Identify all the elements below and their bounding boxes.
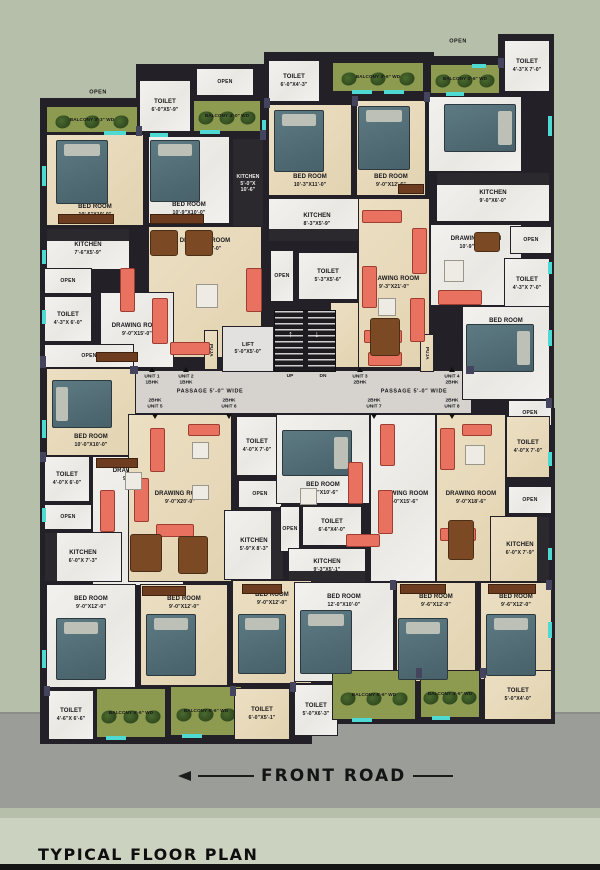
unit-arrow-icon — [357, 367, 363, 372]
bed-pillow — [158, 144, 193, 156]
room-dimensions: 9'-6"X12'-0" — [499, 602, 533, 609]
room-balcony-3-6-b: BALCONY 3'-6" WD — [430, 64, 500, 94]
room-name: TOILET — [152, 99, 179, 107]
sidetable-furniture — [444, 260, 464, 282]
bed-furniture — [146, 614, 196, 676]
bed-furniture — [274, 110, 324, 172]
room-name: KITCHEN — [506, 542, 534, 550]
room-name: TOILET — [514, 440, 542, 448]
door-jamb — [498, 58, 504, 68]
room-name: BED ROOM — [167, 596, 201, 604]
room-open-left-1: OPEN — [44, 268, 92, 294]
sofa-furniture — [362, 266, 377, 308]
room-dimensions: 5'-0"X 10'-6" — [234, 181, 262, 194]
door-jamb — [290, 682, 296, 692]
unit-arrow-icon — [449, 367, 455, 372]
bed-furniture — [300, 610, 352, 674]
door-jamb — [260, 130, 266, 140]
door-jamb — [40, 452, 46, 462]
kitchen-counter — [45, 533, 57, 581]
floor-plan-screenshot: FRONT ROAD TYPICAL FLOOR PLAN BALCONY 3'… — [0, 0, 600, 870]
room-label: BALCONY 3'-3" WD — [70, 117, 114, 123]
room-open-mid: OPEN — [270, 250, 294, 302]
room-toilet-6-0x5-1: TOILET6'-0"X5'-1" — [234, 688, 290, 740]
plant-icon — [56, 115, 71, 128]
room-label: BED ROOM9'-0"X12'-0" — [167, 596, 201, 610]
passage-label: UNIT 42BHK — [444, 375, 459, 388]
bed-furniture — [358, 106, 410, 170]
sidetable-furniture — [465, 445, 485, 465]
floor-plan: BALCONY 3'-3" WDTOILET6'-0"X5'-9"OPENBAL… — [0, 0, 600, 870]
kitchen-counter — [269, 229, 365, 241]
wardrobe-furniture — [96, 352, 138, 362]
room-name: TOILET — [505, 688, 532, 696]
passage-label: 2BHKUNIT 8 — [444, 399, 459, 412]
room-name: BED ROOM — [172, 202, 206, 210]
unit-arrow-icon — [226, 414, 232, 419]
sofa-furniture — [362, 210, 402, 223]
window-marker — [42, 250, 46, 264]
passage-label-line: UP — [287, 374, 294, 380]
sidetable-furniture — [192, 442, 209, 459]
window-marker — [182, 734, 202, 738]
room-name: TOILET — [513, 59, 541, 67]
passage-label: 2BHKUNIT 7 — [366, 399, 381, 412]
room-name: BED ROOM — [78, 204, 112, 212]
room-name: BED ROOM — [499, 594, 533, 602]
room-open-right-3: OPEN — [508, 486, 552, 514]
room-toilet-6-0x5-9: TOILET6'-0"X5'-9" — [139, 80, 191, 132]
door-jamb — [40, 356, 46, 368]
sofa-furniture — [438, 290, 482, 305]
unit-arrow-icon — [152, 414, 158, 419]
room-name: OPEN — [522, 497, 537, 503]
passage-label-line: UNIT 8 — [444, 405, 459, 411]
room-label: BED ROOM9'-0"X12'-0" — [255, 592, 289, 606]
room-label: TOILET4'-3"X 7'-0" — [513, 59, 541, 73]
sofa-furniture — [170, 342, 210, 355]
bed-furniture — [466, 324, 534, 372]
bed-pillow — [64, 144, 100, 156]
passage-label-line: PASSAGE 5'-0" WIDE — [381, 388, 448, 395]
room-toilet-4-3x7-0-b: TOILET4'-3"X 7'-0" — [504, 258, 550, 310]
bed-furniture — [56, 140, 108, 204]
bed-pillow — [308, 614, 344, 626]
passage-label-line: 1BHK — [144, 381, 159, 387]
room-dimensions: 10'-0"X10'-0" — [74, 442, 108, 449]
sidetable-furniture — [378, 298, 396, 316]
kitchen-counter — [47, 229, 129, 241]
plant-icon — [399, 73, 414, 86]
window-marker — [548, 452, 552, 466]
passage-label: UNIT 32BHK — [352, 375, 367, 388]
room-name: OPEN — [523, 237, 538, 243]
bed-pillow — [494, 618, 529, 630]
room-toilet-4-0x7-0-d: TOILET4'-0"X 7'-0" — [506, 416, 550, 478]
room-label: BALCONY 5'-6" WD — [184, 708, 228, 714]
bed-pillow — [366, 110, 402, 122]
room-label: KITCHEN6'-0"X 7'-9" — [506, 542, 534, 556]
passage-label-line: PASSAGE 5'-0" WIDE — [177, 388, 244, 395]
kitchen-counter — [437, 173, 549, 185]
staircase: ↑↓ — [274, 310, 336, 372]
room-kitchen-7-6x5-9: KITCHEN7'-6"X5'-9" — [46, 228, 130, 270]
room-dimensions: 12'-0"X10'-0" — [327, 602, 361, 609]
room-name: TOILET — [57, 708, 85, 716]
room-name: OPEN — [252, 491, 267, 497]
room-name: OPEN — [60, 278, 75, 284]
door-jamb — [424, 92, 430, 102]
passage-label-line: UNIT 7 — [366, 405, 381, 411]
room-dimensions: 9'-6"X12'-0" — [419, 602, 453, 609]
room-name: BED ROOM — [374, 174, 408, 182]
room-name: KITCHEN — [74, 242, 101, 250]
room-name: BED ROOM — [293, 174, 327, 182]
room-label: OPEN — [274, 273, 289, 279]
room-label: TOILET4'-0"X 7'-0" — [243, 439, 271, 453]
room-name: BALCONY 3'-6" WD — [356, 74, 400, 80]
room-dimensions: 9'-0"X12'-0" — [255, 600, 289, 607]
room-dimensions: 5'-0"X5'-0" — [235, 349, 262, 356]
bed-pillow — [334, 437, 348, 469]
passage-label: UNIT 11BHK — [144, 375, 159, 388]
wardrobe-furniture — [58, 214, 114, 224]
room-name: TOILET — [281, 74, 308, 82]
room-open-top-left: OPEN — [196, 68, 254, 96]
room-name: BED ROOM — [327, 594, 361, 602]
passage-label: 2BHKUNIT 6 — [221, 399, 236, 412]
room-label: BALCONY 4'-6" WD — [428, 691, 472, 697]
window-marker — [42, 508, 46, 522]
bed-pillow — [64, 622, 99, 634]
room-dimensions: 4'-6"X 6'-6" — [57, 716, 85, 723]
passage-label-line: 2BHK — [352, 381, 367, 387]
window-marker — [42, 420, 46, 438]
door-jamb — [230, 686, 236, 696]
room-label: KITCHEN5'-0"X 10'-6" — [234, 174, 262, 193]
open-area-label: OPEN — [449, 38, 467, 45]
room-name: BALCONY 3'-3" WD — [70, 117, 114, 123]
room-label: PUJA — [424, 347, 430, 360]
room-dimensions: 4'-3"X 6'-0" — [54, 320, 82, 327]
room-label: OPEN — [81, 353, 96, 359]
room-label: LIFT5'-0"X5'-0" — [235, 342, 262, 355]
window-marker — [200, 130, 220, 134]
wardrobe-furniture — [400, 584, 446, 594]
room-kitchen-5-0x10-6: KITCHEN5'-0"X 10'-6" — [232, 138, 264, 230]
room-toilet-5-0x4-0: TOILET5'-0"X4'-0" — [484, 670, 552, 720]
sofa-furniture — [380, 424, 395, 466]
room-name: PUJA — [424, 347, 430, 360]
window-marker — [384, 90, 404, 94]
room-name: TOILET — [315, 269, 342, 277]
room-name: KITCHEN — [303, 213, 330, 221]
table-furniture — [150, 230, 178, 256]
unit-arrow-icon — [149, 367, 155, 372]
door-jamb — [264, 98, 270, 108]
wardrobe-furniture — [150, 214, 204, 224]
room-label: DRAWING ROOM9'-0"X18'-6" — [446, 491, 497, 505]
passage-label-line: UNIT 6 — [221, 405, 236, 411]
wardrobe-furniture — [488, 584, 536, 594]
room-dimensions: 6'-0"X4'-3" — [281, 82, 308, 89]
room-name: OPEN — [60, 514, 75, 520]
room-open-right-1: OPEN — [510, 226, 552, 254]
sofa-furniture — [440, 428, 455, 470]
room-open-left-3: OPEN — [44, 504, 92, 530]
room-label: TOILET4'-3"X 7'-0" — [513, 277, 541, 291]
room-label: BED ROOM12'-0"X10'-0" — [327, 594, 361, 608]
room-lift: LIFT5'-0"X5'-0" — [222, 326, 274, 372]
room-label: TOILET5'-0"X4'-0" — [505, 688, 532, 702]
room-dimensions: 9'-0"X12'-0" — [167, 604, 201, 611]
room-label: BALCONY 5'-6" WD — [109, 710, 153, 716]
room-label: BALCONY 3'-6" WD — [356, 74, 400, 80]
table-furniture — [178, 536, 208, 574]
passage-label: UP — [287, 374, 294, 380]
room-label: BALCONY 3'-6" WD — [443, 76, 487, 82]
room-label: KITCHEN5'-9"X 8'-3" — [240, 538, 268, 552]
window-marker — [42, 310, 46, 324]
plant-icon — [342, 73, 357, 86]
arrow-line-tail — [413, 775, 453, 777]
room-label: TOILET4'-3"X 6'-0" — [54, 312, 82, 326]
room-label: OPEN — [523, 237, 538, 243]
bed-pillow — [406, 622, 441, 634]
sofa-furniture — [120, 268, 135, 312]
room-label: TOILET5'-0"X6'-3" — [303, 703, 330, 717]
front-road-annotation: FRONT ROAD — [178, 766, 453, 786]
room-name: BED ROOM — [74, 434, 108, 442]
room-name: BALCONY 5'-6" WD — [109, 710, 153, 716]
room-dimensions: 5'-0"X6'-3" — [303, 711, 330, 718]
room-name: DRAWING ROOM — [446, 491, 497, 499]
door-jamb — [466, 366, 474, 374]
room-label: BED ROOM9'-0"X12'-0" — [74, 596, 108, 610]
bed-furniture — [52, 380, 112, 428]
door-jamb — [136, 126, 142, 136]
passage-label: PASSAGE 5'-0" WIDE — [177, 388, 244, 395]
room-toilet-4-3x6-0: TOILET4'-3"X 6'-0" — [44, 296, 92, 342]
room-dimensions: 4'-0"X 6'-0" — [53, 480, 81, 487]
room-name: KITCHEN — [234, 174, 262, 180]
room-dimensions: 8'-3"X5'-9" — [303, 221, 330, 228]
room-kitchen-9-0x6-0: KITCHEN9'-0"X6'-0" — [436, 172, 550, 222]
room-label: OPEN — [252, 491, 267, 497]
room-label: BED ROOM10'-0"X10'-0" — [74, 434, 108, 448]
room-dimensions: 6'-0"X5'-9" — [152, 107, 179, 114]
wardrobe-furniture — [242, 584, 282, 594]
room-name: BALCONY 4'-0" WD — [205, 113, 249, 119]
room-label: KITCHEN9'-3"X5'-1" — [313, 559, 340, 573]
room-dimensions: 9'-3"X5'-1" — [313, 567, 340, 574]
room-dimensions: 9'-0"X6'-0" — [479, 198, 506, 205]
bed-furniture — [282, 430, 352, 476]
unit-arrow-icon — [449, 414, 455, 419]
room-label: BALCONY 4'-0" WD — [205, 113, 249, 119]
room-name: TOILET — [249, 707, 276, 715]
table-furniture — [130, 534, 162, 572]
stair-direction-icon: ↑ — [288, 329, 293, 339]
room-label: OPEN — [60, 514, 75, 520]
window-marker — [548, 262, 552, 274]
room-label: TOILET6'-6"X4'-0" — [319, 519, 346, 533]
passage-label-line: UNIT 5 — [147, 405, 162, 411]
room-toilet-4-6x6-6: TOILET4'-6"X 6'-6" — [48, 690, 94, 740]
room-dimensions: 4'-3"X 7'-0" — [513, 67, 541, 74]
unit-arrow-icon — [371, 414, 377, 419]
window-marker — [42, 650, 46, 668]
room-label: OPEN — [282, 526, 297, 532]
room-label: TOILET4'-0"X 7'-0" — [514, 440, 542, 454]
room-dimensions: 4'-0"X 7'-0" — [243, 447, 271, 454]
room-label: BED ROOM9'-6"X12'-0" — [419, 594, 453, 608]
sidetable-furniture — [192, 485, 209, 500]
room-dimensions: 6'-0"X 7'-9" — [506, 550, 534, 557]
room-open-strip: OPEN — [280, 506, 300, 552]
sofa-furniture — [410, 298, 425, 342]
room-name: TOILET — [243, 439, 271, 447]
bed-pillow — [154, 618, 189, 630]
room-name: TOILET — [513, 277, 541, 285]
bed-furniture — [444, 104, 516, 152]
room-label: TOILET6'-0"X4'-3" — [281, 74, 308, 88]
room-dimensions: 4'-0"X 7'-0" — [514, 448, 542, 455]
room-balcony-3-6-a: BALCONY 3'-6" WD — [332, 62, 424, 92]
door-jamb — [390, 580, 396, 590]
room-dimensions: 5'-9"X 8'-3" — [240, 546, 268, 553]
table-furniture — [185, 230, 213, 256]
bed-pillow — [282, 114, 317, 126]
table-furniture — [448, 520, 474, 560]
room-kitchen-5-9x8-3: KITCHEN5'-9"X 8'-3" — [224, 510, 284, 580]
room-toilet-5-3x5-6: TOILET5'-3"X5'-6" — [298, 252, 358, 300]
passage-label: PASSAGE 5'-0" WIDE — [381, 388, 448, 395]
passage-label-line: 1BHK — [178, 381, 193, 387]
room-dimensions: 9'-0"X12'-0" — [74, 604, 108, 611]
window-marker — [150, 133, 168, 137]
page-title: TYPICAL FLOOR PLAN — [38, 845, 258, 864]
room-kitchen-9-3x5-1: KITCHEN9'-3"X5'-1" — [288, 548, 366, 584]
room-dimensions: 10'-3"X11'-0" — [293, 182, 327, 189]
room-label: TOILET6'-0"X5'-9" — [152, 99, 179, 113]
room-dimensions: 6'-0"X 7'-3" — [69, 558, 97, 565]
wardrobe-furniture — [142, 586, 186, 596]
room-label: KITCHEN7'-6"X5'-9" — [74, 242, 101, 256]
room-label: OPEN — [217, 79, 232, 85]
window-marker — [352, 90, 372, 94]
window-marker — [548, 622, 552, 638]
room-label: TOILET5'-3"X5'-6" — [315, 269, 342, 283]
sofa-furniture — [100, 490, 115, 532]
room-toilet-4-0x6-0: TOILET4'-0"X 6'-0" — [44, 456, 90, 502]
door-jamb — [416, 668, 422, 678]
window-marker — [446, 92, 464, 96]
table-furniture — [370, 318, 400, 356]
bed-pillow — [245, 618, 278, 630]
door-jamb — [546, 398, 552, 408]
unit-arrow-icon — [183, 367, 189, 372]
bed-furniture — [238, 614, 286, 674]
room-name: BALCONY 5'-6" WD — [184, 708, 228, 714]
sofa-furniture — [412, 228, 427, 274]
room-balcony-5-6-a: BALCONY 5'-6" WD — [96, 688, 166, 738]
room-name: TOILET — [54, 312, 82, 320]
sidetable-furniture — [300, 488, 317, 505]
sofa-furniture — [346, 534, 380, 547]
room-name: BALCONY 5'-6" WD — [352, 692, 396, 698]
door-jamb — [44, 686, 50, 696]
room-dimensions: 9'-0"X18'-6" — [446, 499, 497, 506]
passage-label: UNIT 21BHK — [178, 375, 193, 388]
room-dimensions: 6'-6"X4'-0" — [319, 527, 346, 534]
room-name: LIFT — [235, 342, 262, 349]
room-toilet-4-0x7-0-c: TOILET4'-0"X 7'-0" — [236, 416, 278, 476]
plant-icon — [113, 115, 128, 128]
room-name: TOILET — [53, 472, 81, 480]
sidetable-furniture — [196, 284, 218, 308]
sofa-furniture — [378, 490, 393, 534]
window-marker — [432, 716, 450, 720]
bed-furniture — [56, 618, 106, 680]
room-kitchen-8-3x5-9: KITCHEN8'-3"X5'-9" — [268, 198, 366, 242]
room-kitchen-6-0x7-3: KITCHEN6'-0"X 7'-3" — [44, 532, 122, 582]
room-name: BALCONY 3'-6" WD — [443, 76, 487, 82]
sidetable-furniture — [125, 472, 142, 490]
room-name: KITCHEN — [313, 559, 340, 567]
door-jamb — [130, 366, 138, 374]
room-toilet-4-3x7-0-a: TOILET4'-3"X 7'-0" — [504, 40, 550, 92]
room-name: TOILET — [303, 703, 330, 711]
window-marker — [106, 736, 126, 740]
sofa-furniture — [246, 268, 262, 312]
bed-pillow — [517, 331, 530, 364]
wardrobe-furniture — [398, 184, 424, 194]
room-label: KITCHEN9'-0"X6'-0" — [479, 190, 506, 204]
room-label: BED ROOM9'-6"X12'-0" — [499, 594, 533, 608]
bed-furniture — [150, 140, 200, 202]
room-label: TOILET4'-6"X 6'-6" — [57, 708, 85, 722]
room-label: OPEN — [60, 278, 75, 284]
room-dimensions: 6'-0"X5'-1" — [249, 715, 276, 722]
table-furniture — [474, 232, 500, 252]
sofa-furniture — [188, 424, 220, 436]
room-dimensions: 7'-6"X5'-9" — [74, 250, 101, 257]
window-marker — [352, 718, 372, 722]
passage-label: 2BHKUNIT 5 — [147, 399, 162, 412]
bed-furniture — [398, 618, 448, 680]
door-jamb — [480, 668, 486, 678]
door-jamb — [352, 96, 358, 106]
window-marker — [548, 548, 552, 560]
room-dimensions: 4'-3"X 7'-0" — [513, 285, 541, 292]
room-name: KITCHEN — [479, 190, 506, 198]
room-balcony-3-3: BALCONY 3'-3" WD — [46, 106, 138, 133]
room-name: BED ROOM — [419, 594, 453, 602]
room-name: KITCHEN — [240, 538, 268, 546]
left-arrow-icon — [178, 771, 191, 781]
room-name: KITCHEN — [69, 550, 97, 558]
window-marker — [472, 64, 486, 68]
sofa-furniture — [152, 298, 168, 344]
window-marker — [104, 131, 126, 135]
arrow-line — [198, 775, 254, 777]
open-area-label: OPEN — [89, 89, 107, 96]
front-road-label: FRONT ROAD — [261, 766, 406, 786]
sofa-furniture — [462, 424, 492, 436]
window-marker — [548, 330, 552, 346]
bed-pillow — [56, 387, 68, 420]
